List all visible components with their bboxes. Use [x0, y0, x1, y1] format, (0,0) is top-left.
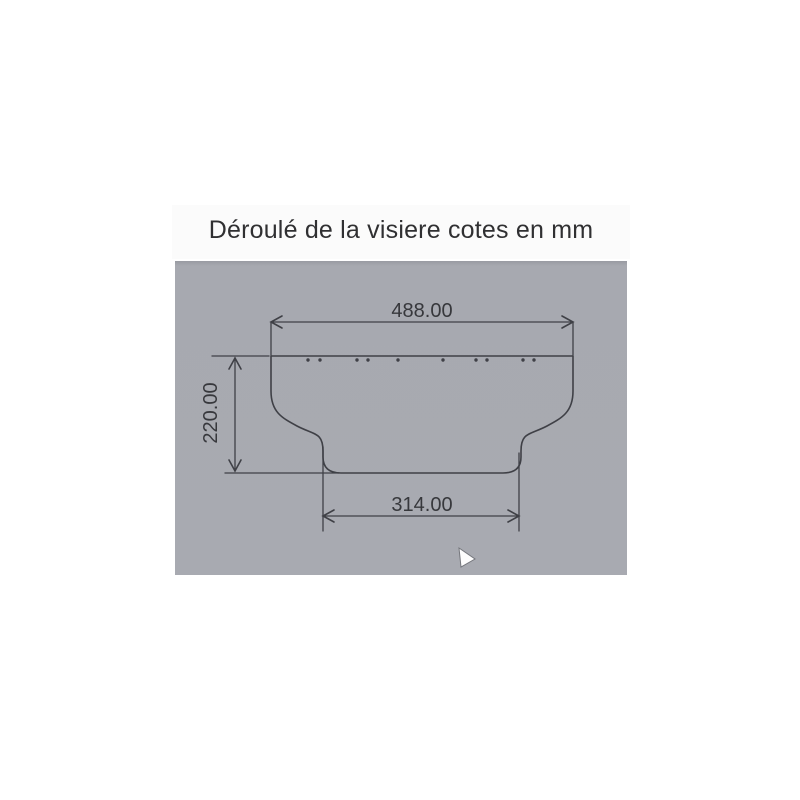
hole-dot [306, 358, 309, 361]
visor-outline [271, 356, 573, 473]
dimension-bottom-width [323, 447, 519, 531]
hole-dot [366, 358, 369, 361]
dim-label-bottom-width: 314.00 [391, 494, 452, 516]
dim-label-top-width: 488.00 [391, 300, 452, 322]
hole-dot [521, 358, 524, 361]
page-title: Déroulé de la visiere cotes en mm [175, 216, 627, 245]
visor-drawing-svg: 488.00 220.00 314.00 [175, 261, 627, 575]
hole-dot [355, 358, 358, 361]
hole-dot [318, 358, 321, 361]
dim-label-side-height: 220.00 [200, 382, 222, 443]
hole-dot [532, 358, 535, 361]
hole-dots [306, 358, 535, 361]
hole-dot [485, 358, 488, 361]
hole-dot [441, 358, 444, 361]
dimension-side-height [212, 356, 339, 473]
hole-dot [396, 358, 399, 361]
drawing-panel: 488.00 220.00 314.00 [175, 261, 627, 575]
hole-dot [474, 358, 477, 361]
mouse-cursor-icon [459, 548, 475, 567]
